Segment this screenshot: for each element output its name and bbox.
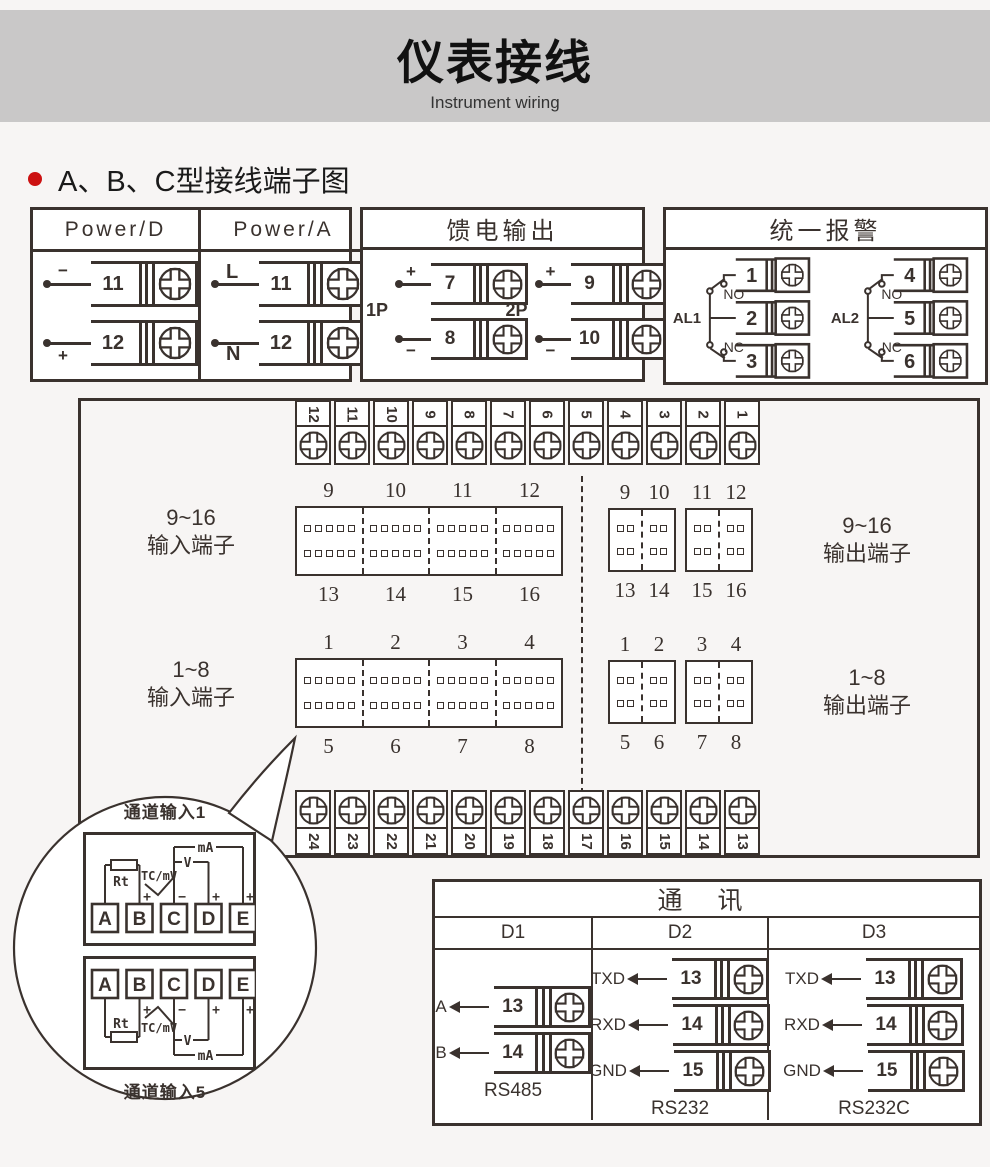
strip-number: 8 bbox=[461, 410, 478, 418]
strip-number: 9 bbox=[422, 410, 439, 418]
strip-number: 20 bbox=[461, 833, 478, 850]
protocol-caption: RS232 bbox=[651, 1098, 709, 1120]
power-a-terminal-12: N 12 bbox=[209, 320, 366, 366]
pin-square bbox=[525, 525, 532, 532]
channel-input-5-label: 通道输入5 bbox=[60, 1078, 270, 1103]
screw-terminal-icon bbox=[923, 1050, 965, 1092]
left-arrow-icon bbox=[823, 978, 861, 981]
screw-terminal-icon bbox=[685, 790, 721, 830]
pin-square bbox=[348, 677, 355, 684]
screw-terminal-icon bbox=[334, 425, 370, 465]
terminal-strip-bottom: 24 23 22 21 20 19 18 17 16 15 14 13 bbox=[295, 790, 760, 855]
pin-square bbox=[304, 525, 311, 532]
pin-square bbox=[514, 702, 521, 709]
screw-terminal-icon bbox=[646, 425, 682, 465]
alarm-box: 统一报警 1 2 3 NO NC AL1 bbox=[663, 207, 988, 385]
pin-square bbox=[650, 700, 657, 707]
pin-square bbox=[370, 550, 377, 557]
left-arrow-icon bbox=[630, 1024, 668, 1027]
pin-square bbox=[414, 702, 421, 709]
rt-label: Rt bbox=[113, 1017, 129, 1032]
tc-mv-label: TC/mV bbox=[141, 1021, 177, 1035]
left-arrow-icon bbox=[451, 1006, 489, 1009]
screw-terminal-icon bbox=[646, 790, 682, 830]
pin-square bbox=[525, 702, 532, 709]
output-9-16-bottom-numbers-a: 1314 bbox=[608, 578, 676, 603]
input-1-8-top-numbers: 1234 bbox=[295, 630, 563, 655]
pin-square bbox=[650, 525, 657, 532]
alarm-group-al2: 4 5 6 NO NC AL2 bbox=[828, 253, 986, 385]
v-label: V bbox=[184, 1034, 192, 1049]
plus-sign: + bbox=[212, 1003, 220, 1018]
pin-square bbox=[627, 525, 634, 532]
pin-square bbox=[459, 677, 466, 684]
feed-group-1p: 1P + 7 − 8 bbox=[363, 262, 503, 361]
minus-sign: − bbox=[546, 341, 556, 361]
screw-terminal-icon bbox=[373, 790, 409, 830]
screw-terminal-icon bbox=[607, 425, 643, 465]
pin-square bbox=[727, 525, 734, 532]
strip-number: 21 bbox=[422, 833, 439, 850]
input-connector-9-16 bbox=[295, 506, 563, 576]
terminal-strip-top: 12 11 10 9 8 7 6 5 4 3 2 1 bbox=[295, 400, 760, 465]
screw-terminal-icon bbox=[568, 790, 604, 830]
feed-output-box: 馈电输出 1P + 7 − 8 bbox=[360, 207, 645, 382]
alarm-terminal-number: 5 bbox=[904, 308, 915, 330]
output-9-16-top-numbers-b: 1112 bbox=[685, 480, 753, 505]
alarm-title: 统一报警 bbox=[666, 210, 985, 250]
pin-square bbox=[459, 702, 466, 709]
pin-square bbox=[704, 700, 711, 707]
strip-number: 7 bbox=[500, 410, 517, 418]
output-1-8-label: 1~8 输出端子 bbox=[772, 664, 962, 720]
power-a-terminal-11: L 11 bbox=[209, 261, 366, 307]
strip-number: 11 bbox=[343, 406, 360, 422]
power-a-header: Power/A bbox=[201, 210, 366, 252]
L-sign: L bbox=[226, 261, 238, 284]
minus-sign: − bbox=[58, 261, 68, 281]
plus-sign: + bbox=[406, 262, 416, 282]
signal-label: TXD bbox=[591, 969, 625, 989]
pin-square bbox=[392, 702, 399, 709]
no-contact-label: NO bbox=[723, 286, 744, 302]
wire-L: L bbox=[209, 261, 259, 307]
pin-square bbox=[304, 702, 311, 709]
dashed-separator bbox=[581, 476, 583, 794]
pin-square bbox=[403, 550, 410, 557]
pin-square bbox=[514, 677, 521, 684]
pin-square bbox=[448, 525, 455, 532]
left-arrow-icon bbox=[824, 1024, 862, 1027]
power-d-header: Power/D bbox=[33, 210, 201, 252]
minus-sign: − bbox=[178, 890, 186, 905]
screw-terminal-icon bbox=[412, 790, 448, 830]
pin-square bbox=[437, 550, 444, 557]
input-9-16-bottom-numbers: 13141516 bbox=[295, 582, 563, 607]
strip-number: 18 bbox=[539, 833, 556, 850]
pin-square bbox=[536, 677, 543, 684]
signal-label: RXD bbox=[590, 1015, 626, 1035]
communication-headers: D1 D2 D3 bbox=[435, 918, 979, 950]
pin-square bbox=[337, 702, 344, 709]
screw-terminal-icon bbox=[373, 425, 409, 465]
input-1-8-label: 1~8 输入端子 bbox=[96, 656, 286, 712]
group-label: 2P bbox=[506, 300, 528, 321]
screw-terminal-icon bbox=[607, 790, 643, 830]
signal-label: GND bbox=[783, 1061, 821, 1081]
strip-number: 19 bbox=[500, 833, 517, 850]
plus-sign: + bbox=[143, 890, 151, 905]
pin-square bbox=[660, 525, 667, 532]
pin-square bbox=[403, 525, 410, 532]
output-1-8-bottom-numbers-a: 56 bbox=[608, 730, 676, 755]
channel-input-1-label: 通道输入1 bbox=[60, 798, 270, 823]
pin-square bbox=[403, 677, 410, 684]
terminal-block: 11 bbox=[91, 261, 198, 307]
plus-sign: + bbox=[212, 890, 220, 905]
screw-terminal-icon bbox=[626, 318, 668, 360]
pin-square bbox=[525, 550, 532, 557]
pin-square bbox=[437, 677, 444, 684]
alarm-terminal-number: 4 bbox=[904, 265, 915, 287]
signal-label: RXD bbox=[784, 1015, 820, 1035]
power-d-terminal-11: − 11 bbox=[41, 261, 198, 307]
alarm-terminal-number: 3 bbox=[746, 351, 757, 373]
output-connector-9-16-a bbox=[608, 508, 676, 572]
N-sign: N bbox=[226, 343, 240, 366]
strip-number: 14 bbox=[695, 833, 712, 850]
pin-square bbox=[326, 677, 333, 684]
no-contact-label: NO bbox=[881, 286, 902, 302]
screw-terminal-icon bbox=[626, 263, 668, 305]
screw-terminal-icon bbox=[729, 1050, 771, 1092]
pin-square bbox=[304, 677, 311, 684]
screw-terminal-icon bbox=[490, 790, 526, 830]
screw-terminal-icon bbox=[727, 958, 769, 1000]
wire-plus: + bbox=[41, 320, 91, 366]
alarm-group-label: AL2 bbox=[830, 310, 858, 327]
strip-number: 5 bbox=[578, 410, 595, 418]
ma-label: mA bbox=[198, 841, 214, 856]
pin-square bbox=[627, 700, 634, 707]
pin-square bbox=[481, 702, 488, 709]
comm-col-rs485: A 13 B 14 RS485 bbox=[435, 950, 593, 1120]
pin-square bbox=[381, 677, 388, 684]
screw-terminal-icon bbox=[921, 958, 963, 1000]
input-1-8-bottom-numbers: 5678 bbox=[295, 734, 563, 759]
pin-square bbox=[315, 550, 322, 557]
pin-square bbox=[547, 550, 554, 557]
alarm-terminal-number: 6 bbox=[904, 351, 915, 373]
comm-header-d2: D2 bbox=[593, 918, 769, 948]
pin-square bbox=[617, 677, 624, 684]
wire-minus: − bbox=[41, 261, 91, 307]
strip-number: 13 bbox=[734, 833, 751, 850]
pin-square bbox=[660, 548, 667, 555]
pin-square bbox=[470, 525, 477, 532]
header-band: 仪表接线 Instrument wiring bbox=[0, 10, 990, 122]
channel-terminal-letter: E bbox=[237, 975, 250, 996]
output-9-16-bottom-numbers-b: 1516 bbox=[685, 578, 753, 603]
rt-label: Rt bbox=[113, 875, 129, 890]
section-title: A、B、C型接线端子图 bbox=[58, 158, 350, 200]
pin-square bbox=[381, 702, 388, 709]
pin-square bbox=[448, 702, 455, 709]
pin-square bbox=[650, 677, 657, 684]
pin-square bbox=[694, 525, 701, 532]
channel-terminal-letter: C bbox=[167, 909, 181, 930]
pin-square bbox=[337, 525, 344, 532]
comm-header-d1: D1 bbox=[435, 918, 593, 948]
left-arrow-icon bbox=[825, 1070, 863, 1073]
screw-terminal-icon bbox=[152, 320, 198, 366]
pin-square bbox=[448, 677, 455, 684]
pin-square bbox=[470, 677, 477, 684]
screw-terminal-icon bbox=[451, 425, 487, 465]
pin-square bbox=[337, 677, 344, 684]
screw-terminal-icon bbox=[529, 790, 565, 830]
v-label: V bbox=[184, 856, 192, 871]
red-bullet-icon bbox=[28, 172, 42, 186]
pin-square bbox=[737, 677, 744, 684]
strip-number: 1 bbox=[734, 410, 751, 418]
pin-square bbox=[315, 525, 322, 532]
channel-terminal-letter: A bbox=[98, 909, 112, 930]
comm-col-rs232c: TXD 13 RXD 14 GND 15 RS232C bbox=[769, 950, 979, 1120]
strip-number: 3 bbox=[656, 410, 673, 418]
pin-square bbox=[315, 702, 322, 709]
pin-square bbox=[536, 525, 543, 532]
plus-sign: + bbox=[246, 1003, 254, 1018]
pin-square bbox=[617, 700, 624, 707]
nc-contact-label: NC bbox=[881, 339, 901, 355]
screw-terminal-icon bbox=[412, 425, 448, 465]
pin-square bbox=[481, 525, 488, 532]
screw-terminal-icon bbox=[334, 790, 370, 830]
protocol-caption: RS485 bbox=[484, 1080, 542, 1102]
pin-square bbox=[727, 548, 734, 555]
pin-square bbox=[326, 550, 333, 557]
pin-square bbox=[503, 677, 510, 684]
input-9-16-top-numbers: 9101112 bbox=[295, 478, 563, 503]
pin-square bbox=[536, 702, 543, 709]
pin-square bbox=[704, 677, 711, 684]
strip-number: 15 bbox=[656, 833, 673, 850]
power-d-terminal-12: + 12 bbox=[41, 320, 198, 366]
channel-terminal-letter: A bbox=[98, 975, 112, 996]
pin-square bbox=[514, 550, 521, 557]
channel-input-5-diagram: A B C D E Rt TC/mV V mA + − + + bbox=[83, 956, 256, 1070]
channel-terminal-letter: D bbox=[202, 975, 216, 996]
pin-square bbox=[370, 677, 377, 684]
screw-terminal-icon bbox=[724, 790, 760, 830]
pin-square bbox=[481, 677, 488, 684]
pin-square bbox=[470, 550, 477, 557]
pin-square bbox=[704, 548, 711, 555]
pin-square bbox=[704, 525, 711, 532]
pin-square bbox=[627, 548, 634, 555]
channel-terminal-letter: C bbox=[167, 975, 181, 996]
pin-square bbox=[348, 550, 355, 557]
pin-square bbox=[414, 677, 421, 684]
communication-title: 通 讯 bbox=[435, 882, 979, 918]
input-9-16-label: 9~16 输入端子 bbox=[96, 504, 286, 560]
pin-square bbox=[414, 525, 421, 532]
page: 仪表接线 Instrument wiring A、B、C型接线端子图 Power… bbox=[0, 0, 990, 1167]
pin-square bbox=[326, 702, 333, 709]
pin-square bbox=[727, 677, 734, 684]
terminal-number: 11 bbox=[91, 261, 135, 307]
pin-square bbox=[660, 700, 667, 707]
pin-square bbox=[514, 525, 521, 532]
comm-header-d3: D3 bbox=[769, 918, 979, 948]
comm-col-rs232: TXD 13 RXD 14 GND 15 RS232 bbox=[593, 950, 769, 1120]
section-heading: A、B、C型接线端子图 bbox=[28, 158, 350, 200]
pin-square bbox=[547, 677, 554, 684]
pin-square bbox=[503, 550, 510, 557]
power-terminal-box: Power/D Power/A − 11 + bbox=[30, 207, 352, 382]
pin-square bbox=[694, 700, 701, 707]
alarm-group-al1: 1 2 3 NO NC AL1 bbox=[670, 253, 828, 385]
output-connector-9-16-b bbox=[685, 508, 753, 572]
channel-terminal-letter: B bbox=[133, 909, 147, 930]
protocol-caption: RS232C bbox=[838, 1098, 910, 1120]
pin-square bbox=[459, 550, 466, 557]
pin-square bbox=[737, 548, 744, 555]
pin-square bbox=[617, 548, 624, 555]
pin-square bbox=[617, 525, 624, 532]
output-9-16-label: 9~16 输出端子 bbox=[772, 512, 962, 568]
pin-square bbox=[470, 702, 477, 709]
pin-square bbox=[547, 525, 554, 532]
pin-square bbox=[547, 702, 554, 709]
page-subtitle: Instrument wiring bbox=[0, 93, 990, 113]
screw-terminal-icon bbox=[728, 1004, 770, 1046]
communication-box: 通 讯 D1 D2 D3 A 13 B 14 RS485 bbox=[432, 879, 982, 1126]
pin-square bbox=[737, 525, 744, 532]
channel-terminal-letter: E bbox=[237, 909, 250, 930]
plus-sign: + bbox=[546, 262, 556, 282]
channel-input-1-diagram: A B C D E Rt TC/mV V mA + − + + bbox=[83, 832, 256, 946]
strip-number: 6 bbox=[539, 410, 556, 418]
power-a-column: L 11 N 12 bbox=[201, 252, 366, 379]
screw-terminal-icon bbox=[549, 1032, 591, 1074]
pin-square bbox=[381, 550, 388, 557]
feed-output-title: 馈电输出 bbox=[363, 210, 642, 250]
signal-label: B bbox=[435, 1043, 446, 1063]
pin-square bbox=[348, 702, 355, 709]
screw-terminal-icon bbox=[451, 790, 487, 830]
pin-square bbox=[381, 525, 388, 532]
pin-square bbox=[660, 677, 667, 684]
pin-square bbox=[326, 525, 333, 532]
minus-sign: − bbox=[178, 1003, 186, 1018]
channel-terminal-letter: B bbox=[133, 975, 147, 996]
signal-label: GND bbox=[589, 1061, 627, 1081]
input-connector-1-8 bbox=[295, 658, 563, 728]
output-connector-1-8-a bbox=[608, 660, 676, 724]
minus-sign: − bbox=[406, 341, 416, 361]
pin-square bbox=[414, 550, 421, 557]
plus-sign: + bbox=[58, 346, 68, 366]
pin-square bbox=[536, 550, 543, 557]
screw-terminal-icon bbox=[152, 261, 198, 307]
left-arrow-icon bbox=[631, 1070, 669, 1073]
left-arrow-icon bbox=[629, 978, 667, 981]
strip-number: 2 bbox=[695, 410, 712, 418]
pin-square bbox=[348, 525, 355, 532]
alarm-group-label: AL1 bbox=[673, 310, 701, 327]
pin-square bbox=[650, 548, 657, 555]
strip-number: 4 bbox=[617, 410, 634, 418]
output-9-16-top-numbers-a: 910 bbox=[608, 480, 676, 505]
power-d-column: − 11 + 12 bbox=[33, 252, 201, 379]
pin-square bbox=[459, 525, 466, 532]
output-1-8-top-numbers-b: 34 bbox=[685, 632, 753, 657]
tc-mv-label: TC/mV bbox=[141, 869, 177, 883]
pin-square bbox=[727, 700, 734, 707]
strip-number: 16 bbox=[617, 833, 634, 850]
alarm-terminal-number: 1 bbox=[746, 265, 757, 287]
pin-square bbox=[627, 677, 634, 684]
pin-square bbox=[392, 550, 399, 557]
screw-terminal-icon bbox=[724, 425, 760, 465]
feed-group-2p: 2P + 9 − 10 bbox=[503, 262, 643, 361]
strip-number: 22 bbox=[383, 833, 400, 850]
output-connector-1-8-b bbox=[685, 660, 753, 724]
pin-square bbox=[503, 525, 510, 532]
strip-number: 23 bbox=[344, 833, 361, 850]
plus-sign: + bbox=[246, 890, 254, 905]
screw-terminal-icon bbox=[568, 425, 604, 465]
pin-square bbox=[481, 550, 488, 557]
screw-terminal-icon bbox=[490, 425, 526, 465]
pin-square bbox=[403, 702, 410, 709]
ma-label: mA bbox=[198, 1049, 214, 1064]
wire-N: N bbox=[209, 320, 259, 366]
screw-terminal-icon bbox=[922, 1004, 964, 1046]
pin-square bbox=[337, 550, 344, 557]
pin-square bbox=[392, 677, 399, 684]
page-title: 仪表接线 bbox=[0, 24, 990, 93]
pin-square bbox=[370, 702, 377, 709]
pin-square bbox=[304, 550, 311, 557]
group-label: 1P bbox=[366, 300, 388, 321]
strip-number: 10 bbox=[383, 406, 400, 423]
pin-square bbox=[437, 525, 444, 532]
signal-label: A bbox=[435, 997, 446, 1017]
left-arrow-icon bbox=[451, 1052, 489, 1055]
strip-number: 17 bbox=[578, 833, 595, 850]
pin-square bbox=[437, 702, 444, 709]
pin-square bbox=[503, 702, 510, 709]
screw-terminal-icon bbox=[529, 425, 565, 465]
screw-terminal-icon bbox=[549, 986, 591, 1028]
pin-square bbox=[525, 677, 532, 684]
output-1-8-top-numbers-a: 12 bbox=[608, 632, 676, 657]
pin-square bbox=[448, 550, 455, 557]
channel-terminal-letter: D bbox=[202, 909, 216, 930]
nc-contact-label: NC bbox=[724, 339, 744, 355]
strip-number: 12 bbox=[305, 406, 322, 423]
pin-square bbox=[737, 700, 744, 707]
screw-terminal-icon bbox=[685, 425, 721, 465]
alarm-terminal-number: 2 bbox=[746, 308, 757, 330]
pin-square bbox=[315, 677, 322, 684]
signal-label: TXD bbox=[785, 969, 819, 989]
pin-square bbox=[370, 525, 377, 532]
output-1-8-bottom-numbers-b: 78 bbox=[685, 730, 753, 755]
